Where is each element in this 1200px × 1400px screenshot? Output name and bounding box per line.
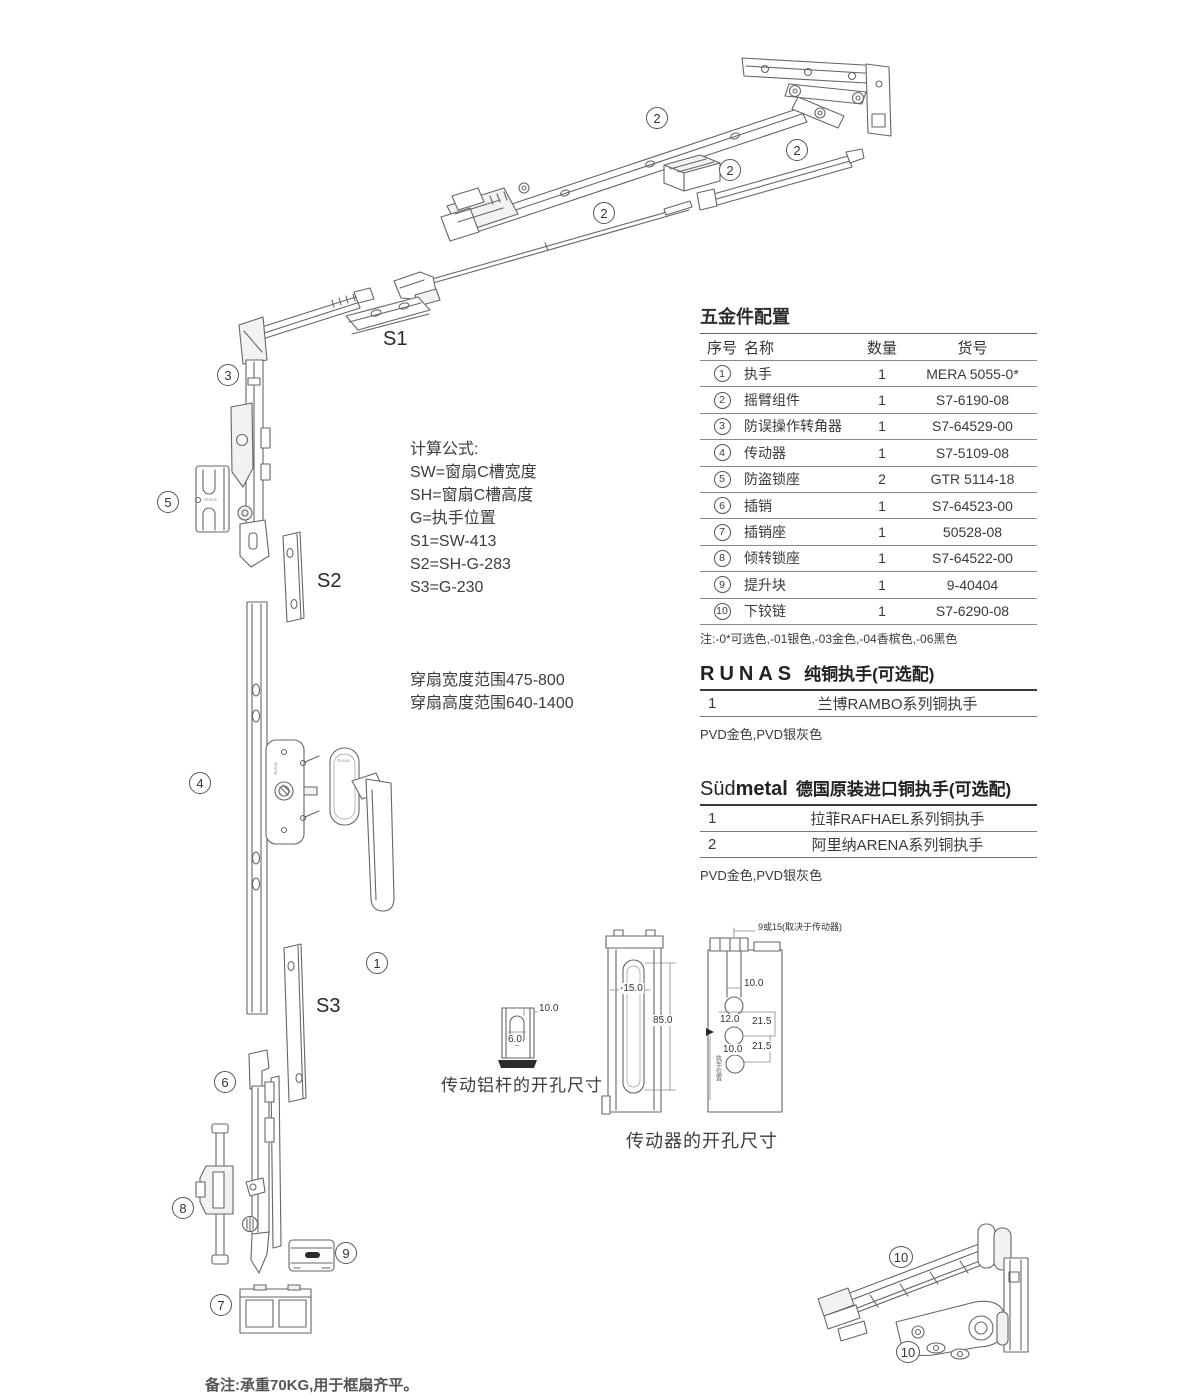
table-row: 6 插销 1 S7-64523-00 [700, 493, 1037, 519]
callout-7: 7 [210, 1294, 232, 1316]
sash-range-block: 穿扇宽度范围475-800 穿扇高度范围640-1400 [410, 669, 574, 715]
col-header-code: 货号 [908, 337, 1037, 358]
runas-part-logo: Runas [337, 758, 351, 763]
col-header-qty: 数量 [856, 337, 908, 358]
alu-rod-hole-caption: 传动铝杆的开孔尺寸 [441, 1071, 603, 1096]
row-no-badge: 1 [714, 365, 731, 382]
callout-2: 2 [646, 107, 668, 129]
col-header-name: 名称 [744, 337, 856, 358]
dim-driver-d5: 21.5 [751, 1041, 772, 1052]
sudmetal-header: Südmetal 德国原装进口铜执手(可选配) [700, 775, 1037, 806]
callout-2: 2 [719, 159, 741, 181]
driver-hole-caption: 传动器的开孔尺寸 [626, 1127, 778, 1153]
s2-label: S2 [317, 570, 341, 593]
option-row: 1 拉菲RAFHAEL系列铜执手 [700, 806, 1037, 832]
table-header-row: 序号 名称 数量 货号 [700, 334, 1037, 361]
sash-width-range: 穿扇宽度范围475-800 [410, 669, 574, 692]
s3-label: S3 [316, 995, 340, 1018]
callout-3: 3 [217, 364, 239, 386]
s1-label: S1 [383, 328, 407, 351]
dim-alu-slot: 6.0 [507, 1034, 523, 1045]
dim-driver-d1: 10.0 [743, 978, 764, 989]
row-no-badge: 6 [714, 497, 731, 514]
dim-profile-slot-height: 85.0 [652, 1015, 673, 1026]
corner-drive-part [231, 288, 374, 567]
lift-block-part [289, 1240, 334, 1271]
runas-header: RUNAS 纯铜执手(可选配) [700, 660, 1037, 691]
dim-driver-d2: 12.0 [719, 1014, 740, 1025]
sudmetal-logo-light: Süd [700, 778, 736, 801]
callout-10: 10 [896, 1341, 920, 1363]
table-row: 7 插销座 1 50528-08 [700, 519, 1037, 545]
pvd-finish-note: PVD金色,PVD银灰色 [700, 858, 1037, 884]
sudmetal-logo-bold: metal [736, 778, 788, 801]
pvd-finish-note: PVD金色,PVD银灰色 [700, 717, 1037, 743]
sash-height-range: 穿扇高度范围640-1400 [410, 692, 574, 715]
dim-driver-d4: 10.0 [722, 1044, 743, 1055]
table-row: 9 提升块 1 9-40404 [700, 572, 1037, 598]
table-row: 3 防误操作转角器 1 S7-64529-00 [700, 414, 1037, 440]
callout-2: 2 [593, 202, 615, 224]
hardware-table-title: 五金件配置 [700, 303, 1037, 334]
callout-5: 5 [157, 491, 179, 513]
formula-line: S1=SW-413 [410, 530, 537, 553]
s2-strip [283, 532, 304, 622]
formula-block: 计算公式: SW=窗扇C槽宽度 SH=窗扇C槽高度 G=执手位置 S1=SW-4… [410, 438, 537, 599]
dim-driver-d3: 21.5 [751, 1016, 772, 1027]
hardware-spec-sheet: Runas Runas Runa [0, 0, 1200, 1400]
row-no-badge: 9 [714, 576, 731, 593]
callout-4: 4 [189, 772, 211, 794]
table-row: 5 防盗锁座 2 GTR 5114-18 [700, 467, 1037, 493]
table-row: 4 传动器 1 S7-5109-08 [700, 440, 1037, 466]
runas-part-logo: Runas [273, 761, 278, 775]
load-capacity-note: 备注:承重70KG,用于框扇齐平。 [205, 1374, 418, 1395]
option-row: 2 阿里纳ARENA系列铜执手 [700, 832, 1037, 858]
row-no-badge: 4 [714, 444, 731, 461]
espagnolette-part [243, 1050, 282, 1273]
callout-8: 8 [172, 1197, 194, 1219]
row-no-badge: 8 [714, 550, 731, 567]
formula-line: SW=窗扇C槽宽度 [410, 461, 537, 484]
formula-line: SH=窗扇C槽高度 [410, 484, 537, 507]
tilt-lock-part [196, 1124, 233, 1264]
row-no-badge: 10 [714, 603, 731, 620]
col-header-no: 序号 [700, 337, 744, 358]
runas-logo: RUNAS [700, 663, 796, 686]
callout-9: 9 [335, 1242, 357, 1264]
dim-profile-slot-width: -15.0 [619, 983, 644, 994]
latch-keeper-part [240, 1285, 311, 1333]
color-option-note: 注:-0*可选色,-01银色,-03金色,-04香槟色,-06黑色 [700, 625, 1037, 647]
formula-line: G=执手位置 [410, 507, 537, 530]
security-keeper-part: Runas [196, 466, 230, 532]
sudmetal-section: Südmetal 德国原装进口铜执手(可选配) 1 拉菲RAFHAEL系列铜执手… [700, 775, 1037, 884]
dim-driver-side-text: 执手位置 [712, 1055, 722, 1081]
formula-line: S3=G-230 [410, 576, 537, 599]
option-row: 1 兰博RAMBO系列铜执手 [700, 691, 1037, 717]
row-no-badge: 7 [714, 524, 731, 541]
s3-strip [284, 944, 306, 1102]
dim-alu-width: 10.0 [538, 1003, 559, 1014]
drive-gear-part: Runas [247, 602, 317, 1014]
window-handle-part: Runas [301, 748, 395, 911]
callout-1: 1 [366, 952, 388, 974]
table-row: 2 摇臂组件 1 S7-6190-08 [700, 387, 1037, 413]
row-no-badge: 2 [714, 392, 731, 409]
formula-line: S2=SH-G-283 [410, 553, 537, 576]
hardware-table: 五金件配置 序号 名称 数量 货号 1 执手 1 MERA 5055-0* 2 … [700, 303, 1037, 647]
callout-10: 10 [889, 1246, 913, 1268]
formula-title: 计算公式: [410, 438, 537, 461]
table-row: 8 倾转锁座 1 S7-64522-00 [700, 546, 1037, 572]
table-row: 1 执手 1 MERA 5055-0* [700, 361, 1037, 387]
row-no-badge: 5 [714, 471, 731, 488]
row-no-badge: 3 [714, 418, 731, 435]
runas-part-logo: Runas [204, 497, 218, 502]
callout-2: 2 [786, 139, 808, 161]
top-stay-assembly [394, 58, 891, 306]
callout-6: 6 [214, 1071, 236, 1093]
dim-driver-top-note: 9或15(取决于传动器) [757, 922, 843, 933]
runas-section: RUNAS 纯铜执手(可选配) 1 兰博RAMBO系列铜执手 PVD金色,PVD… [700, 660, 1037, 743]
table-row: 10 下铰链 1 S7-6290-08 [700, 599, 1037, 625]
bottom-hinge-part [818, 1224, 1028, 1359]
